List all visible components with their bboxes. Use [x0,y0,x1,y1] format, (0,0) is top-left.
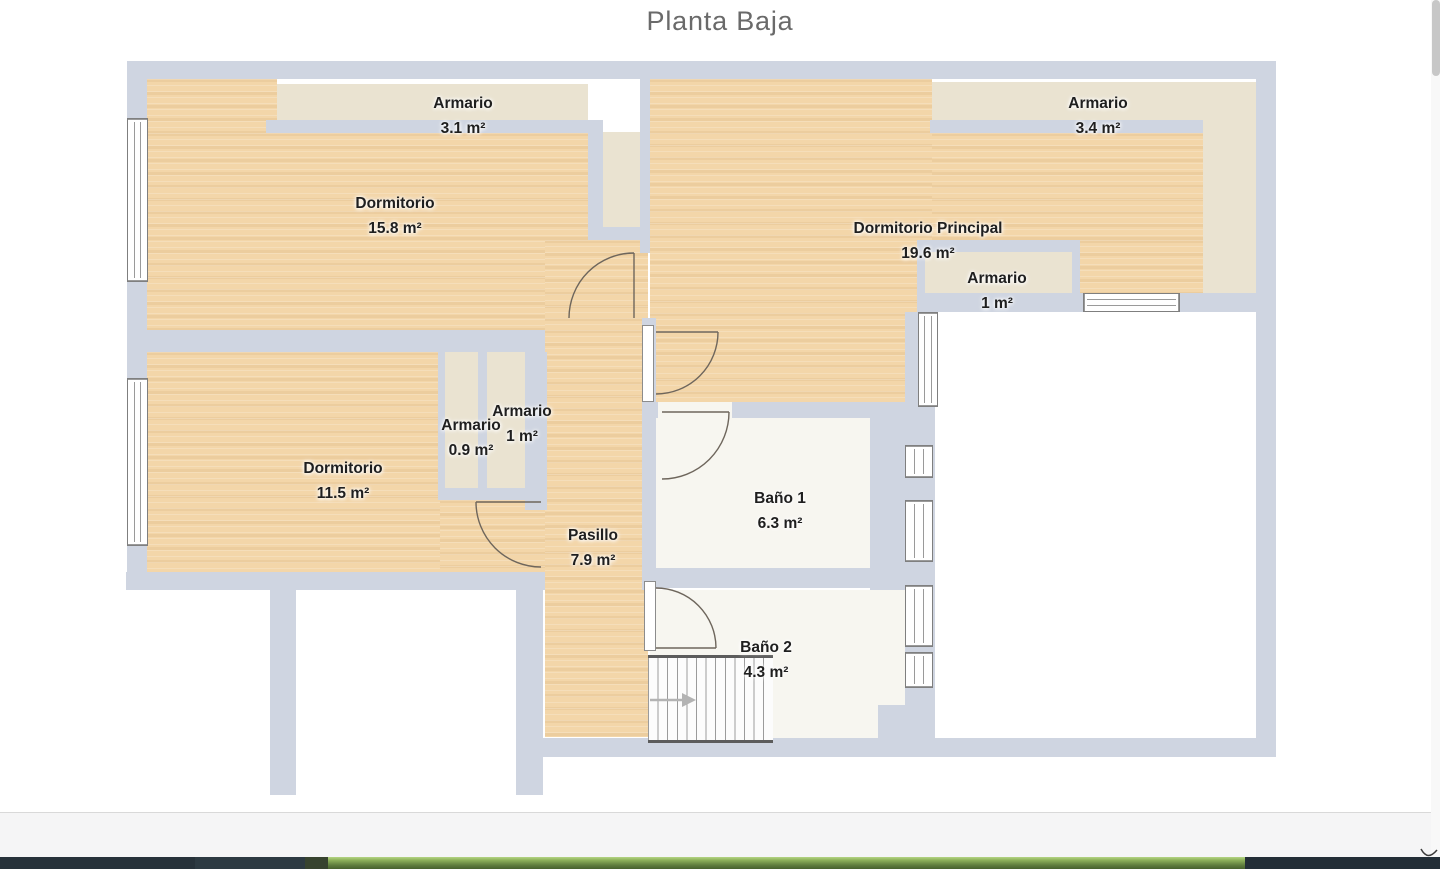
room-area: 15.8 m² [355,216,434,241]
room-label-bano-1: Baño 1 6.3 m² [754,486,806,536]
room-label-dormitorio-2: Dormitorio 11.5 m² [303,456,382,506]
wall-dorm-ppal-left [640,61,650,253]
wall-bano1-right [870,402,907,590]
wall-mid-vertical [588,122,603,240]
wall-top [127,61,1276,79]
window-patio-1 [918,312,938,407]
wall-bano1-left [642,415,656,590]
room-name: Dormitorio [355,191,434,216]
room-area: 1 m² [492,424,551,449]
window-left-2 [127,378,148,546]
room-fill-dormitorio-2 [141,352,440,572]
wall-stub-2 [516,590,543,795]
window-dorm-principal [1083,293,1180,312]
room-area: 11.5 m² [303,481,382,506]
wall-between-banos [642,568,910,588]
footer-area [0,813,1440,857]
room-label-bano-2: Baño 2 4.3 m² [740,635,792,685]
window-patio-3 [905,500,933,562]
room-label-dorm-principal: Dormitorio Principal 19.6 m² [854,216,1003,266]
window-patio-5 [905,652,933,688]
room-label-armario-1p: Armario 1 m² [967,266,1026,316]
window-patio-2 [905,445,933,478]
room-area: 19.6 m² [854,241,1003,266]
room-name: Baño 1 [754,486,806,511]
bottom-bar-green [328,857,1245,869]
room-label-pasillo: Pasillo 7.9 m² [568,523,618,573]
window-patio-4 [905,585,933,647]
room-fill-dorm-principal-c [1080,240,1203,295]
wall-bano1-top-a [642,402,658,418]
room-area: 7.9 m² [568,548,618,573]
wall-armario1p-right [1072,252,1080,293]
room-name: Armario [1068,91,1127,116]
wall-stub-1 [270,590,296,795]
room-area: 6.3 m² [754,511,806,536]
bottom-bar-transition [305,857,328,869]
wall-right [1256,61,1276,757]
wall-bottom-left [126,572,545,590]
room-name: Armario [492,399,551,424]
room-label-armario-31: Armario 3.1 m² [433,91,492,141]
wall-bano2-step [878,705,908,740]
room-fill-closet-strip [603,132,642,227]
bottom-bar-dark-left-1 [0,857,195,869]
room-area: 1 m² [967,291,1026,316]
window-left-1 [127,118,148,282]
wall-under-armario34 [930,120,1203,133]
room-area: 4.3 m² [740,660,792,685]
room-name: Dormitorio [303,456,382,481]
room-name: Baño 2 [740,635,792,660]
floorplan: Dormitorio 15.8 m² Armario 3.1 m² Dormit… [0,0,1440,869]
room-name: Armario [967,266,1026,291]
room-area: 3.1 m² [433,116,492,141]
room-label-dormitorio-1: Dormitorio 15.8 m² [355,191,434,241]
door-jamb-bano-2 [644,581,656,651]
room-fill-corridor-top [545,240,648,330]
room-fill-armario-34b [1203,128,1256,293]
room-area: 3.4 m² [1068,116,1127,141]
room-name: Dormitorio Principal [854,216,1003,241]
door-jamb-dorm-principal [642,325,654,402]
room-fill-bano-1-doorway [658,402,732,416]
wall-between-dorms [127,330,545,352]
room-label-armario-34: Armario 3.4 m² [1068,91,1127,141]
room-label-armario-1s: Armario 1 m² [492,399,551,449]
scrollbar-thumb[interactable] [1432,0,1440,76]
room-name: Pasillo [568,523,618,548]
wall-armarios-bottom [438,488,547,500]
room-name: Armario [433,91,492,116]
room-fill-dormitorio-2-entry [440,500,545,572]
bottom-bar-dark-left-2 [195,857,305,869]
scrollbar-track[interactable] [1431,0,1440,857]
bottom-bar-dark-right [1245,857,1440,869]
